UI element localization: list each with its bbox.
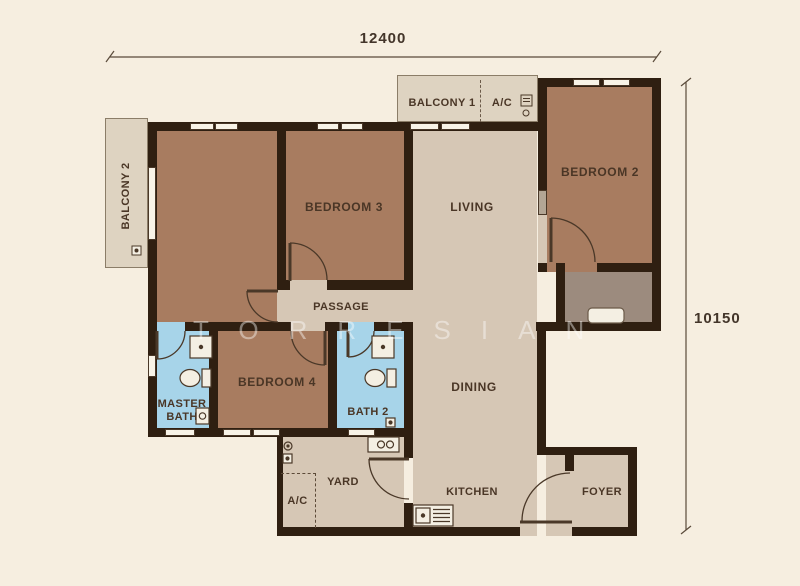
master-bedroom-floor xyxy=(157,131,277,322)
room-label-passage: PASSAGE xyxy=(291,301,391,313)
right-dimension-line xyxy=(681,78,691,534)
dimension-width: 12400 xyxy=(343,30,423,47)
wall xyxy=(565,455,574,471)
room-label-kitchen: KITCHEN xyxy=(422,486,522,498)
room-label-living: LIVING xyxy=(422,200,522,214)
wall xyxy=(537,331,546,455)
window xyxy=(348,429,375,436)
bedroom2-floor xyxy=(547,87,652,272)
wall xyxy=(404,503,413,536)
wall xyxy=(538,263,547,272)
window xyxy=(215,123,238,130)
bedroom2-door-opening xyxy=(538,215,547,263)
wall xyxy=(327,280,413,290)
window xyxy=(441,123,470,130)
window xyxy=(190,123,214,130)
wall xyxy=(277,280,290,290)
window xyxy=(253,429,280,436)
wall xyxy=(652,78,661,331)
room-label-ac-yard: A/C xyxy=(281,495,314,507)
room-label-foyer: FOYER xyxy=(562,486,642,498)
wall xyxy=(277,527,520,536)
room-label-bedroom4: BEDROOM 4 xyxy=(227,375,327,389)
room-label-bedroom3: BEDROOM 3 xyxy=(294,200,394,214)
wall xyxy=(538,78,547,190)
balcony2-sliding-door xyxy=(148,167,156,240)
room-label-master-bath: MASTER BATH xyxy=(151,398,213,424)
watermark-text: TORRESIAN xyxy=(193,317,614,343)
window xyxy=(317,123,339,130)
window xyxy=(165,429,195,436)
floor-plan: TORRESIAN 12400 10150 BALCONY 1 A/C BALC… xyxy=(0,0,800,586)
wall xyxy=(404,122,413,290)
dimension-height: 10150 xyxy=(694,310,754,327)
bedroom2-doorway-strip xyxy=(538,190,547,215)
wall xyxy=(328,331,337,437)
wall xyxy=(597,263,661,272)
room-label-balcony2: BALCONY 2 xyxy=(120,146,132,246)
window xyxy=(341,123,363,130)
window xyxy=(573,79,600,86)
wall xyxy=(537,447,637,455)
window xyxy=(410,123,439,130)
room-label-yard: YARD xyxy=(303,476,383,488)
window xyxy=(603,79,630,86)
room-label-ac-top: A/C xyxy=(484,97,520,109)
window xyxy=(223,429,251,436)
room-label-bedroom2: BEDROOM 2 xyxy=(550,165,650,179)
top-dimension-line xyxy=(106,51,661,62)
window xyxy=(148,355,156,377)
room-label-balcony1: BALCONY 1 xyxy=(398,97,486,109)
room-label-bath2: BATH 2 xyxy=(333,406,403,418)
wall xyxy=(277,122,286,280)
room-label-dining: DINING xyxy=(424,380,524,394)
